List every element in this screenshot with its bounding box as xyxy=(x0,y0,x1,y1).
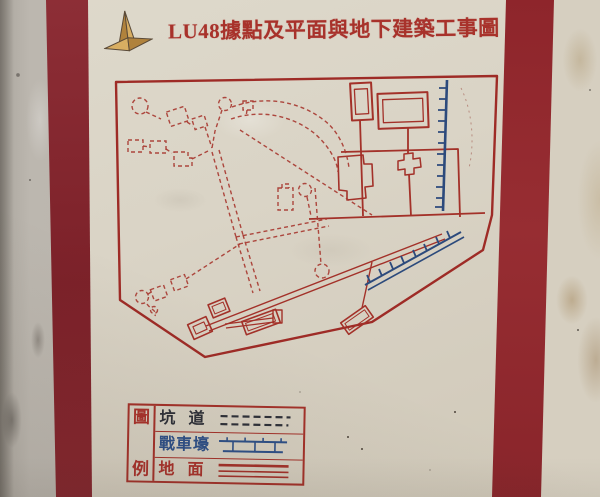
legend-row-tunnel: 坑道 xyxy=(155,406,303,435)
tank-trench-vertical xyxy=(435,80,447,211)
wall-photo: { "title": { "text": "LU48據點及平面與地下建築工事圖"… xyxy=(0,0,600,497)
sign-title: LU48據點及平面與地下建築工事圖 xyxy=(102,5,502,53)
legend-row-ground: 地面 xyxy=(154,458,302,484)
fortification-map xyxy=(95,58,505,398)
legend-box: 圖 例 坑道 戰車壕 地面 xyxy=(126,403,305,485)
ground-symbol-icon xyxy=(216,461,292,482)
legend-char-top: 圖 xyxy=(133,408,150,425)
legend-label-ground: 地面 xyxy=(158,461,216,478)
legend-label-tank-trench: 戰車壕 xyxy=(159,436,217,453)
title-text: LU48據點及平面與地下建築工事圖 xyxy=(168,12,500,45)
tunnel-symbol-icon xyxy=(217,410,293,431)
map-border xyxy=(116,76,497,357)
tank-trench-diagonal xyxy=(365,231,464,290)
legend-header-column: 圖 例 xyxy=(128,405,155,480)
compass-star-icon xyxy=(100,7,154,54)
legend-rows: 坑道 戰車壕 地面 xyxy=(154,406,303,484)
tunnel-network xyxy=(128,88,472,316)
legend-label-tunnel: 坑道 xyxy=(159,410,217,427)
legend-row-tank-trench: 戰車壕 xyxy=(155,432,303,461)
tank-trench-symbol-icon xyxy=(217,436,293,457)
legend-char-bottom: 例 xyxy=(132,460,149,477)
